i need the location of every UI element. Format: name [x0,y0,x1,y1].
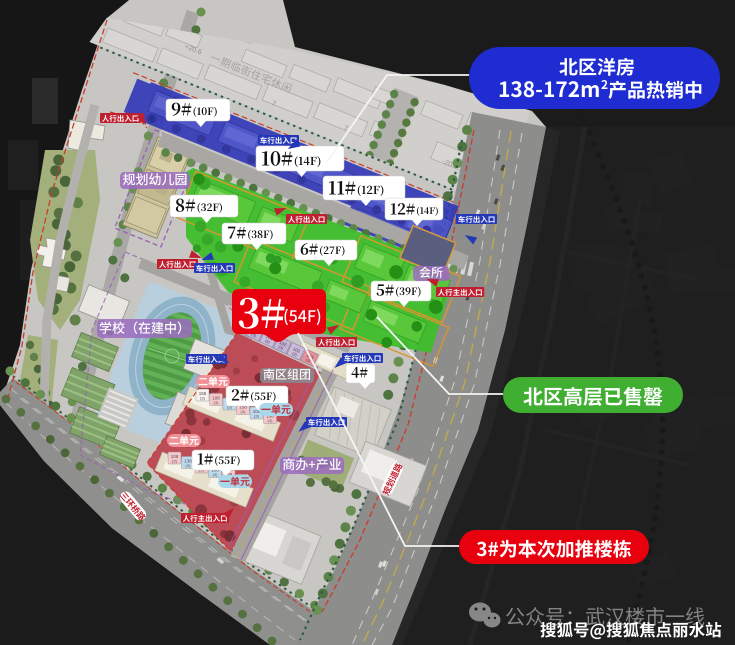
svg-text:(3): (3) [268,418,274,423]
svg-text:(3): (3) [214,400,220,405]
svg-text:(3): (3) [254,414,260,419]
svg-text:(3): (3) [241,409,247,414]
svg-text:(3): (3) [200,396,206,401]
svg-text:(3): (3) [213,472,219,477]
svg-text:(3): (3) [186,463,192,468]
svg-text:(3): (3) [172,459,178,464]
